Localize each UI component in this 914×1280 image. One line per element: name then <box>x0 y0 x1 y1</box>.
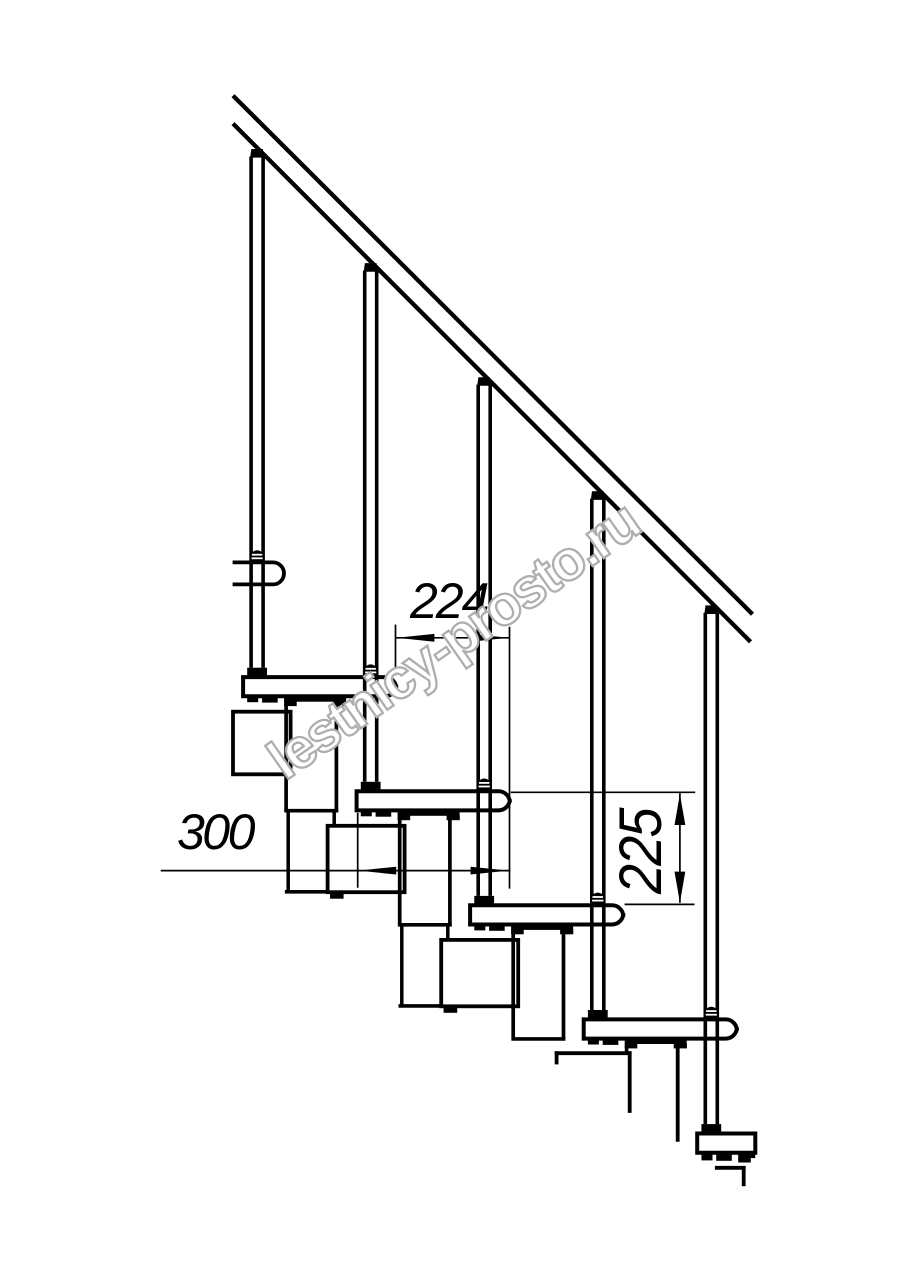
svg-text:300: 300 <box>177 804 256 860</box>
svg-text:225: 225 <box>607 807 674 895</box>
